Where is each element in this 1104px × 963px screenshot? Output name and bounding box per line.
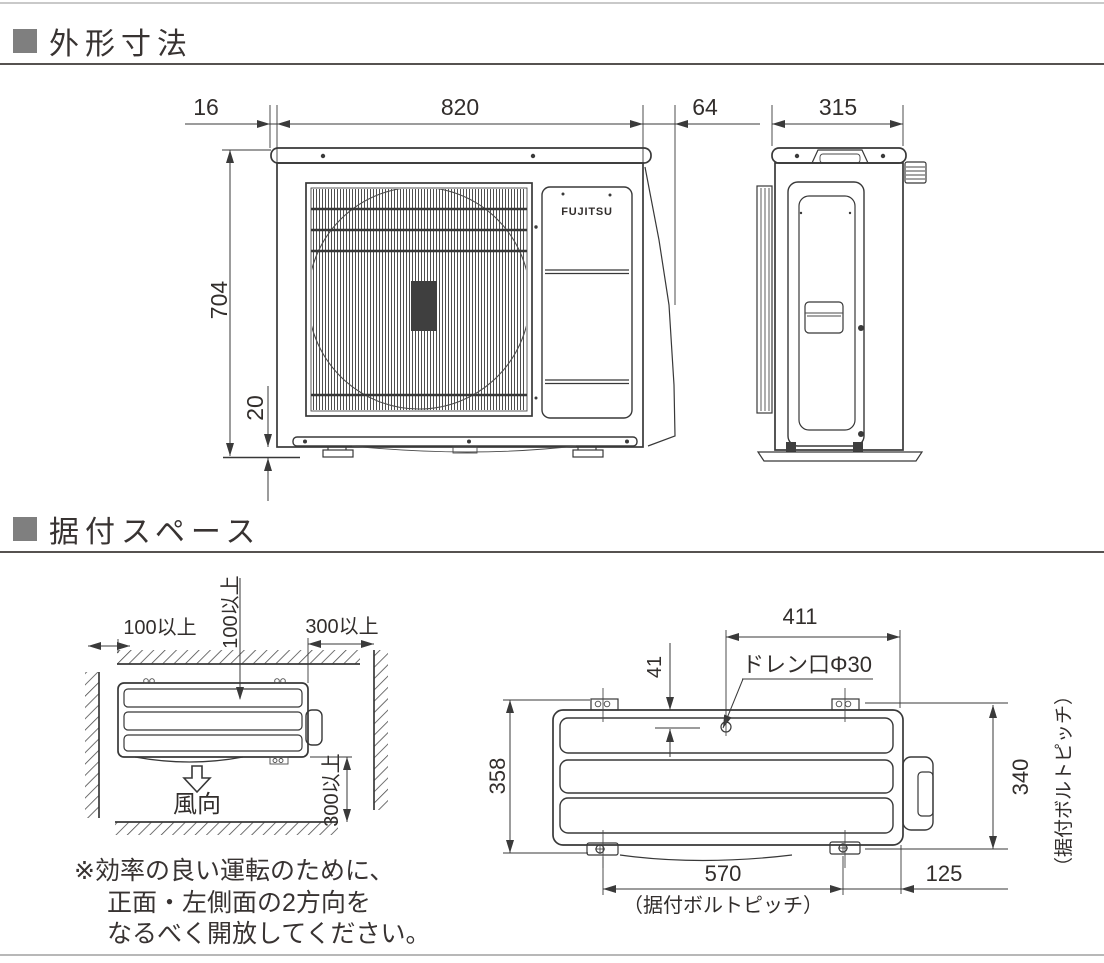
dim-front-height: 704: [206, 281, 232, 320]
fan-grille: [306, 183, 532, 416]
technical-drawing: 16 820 64 704 20: [0, 0, 1104, 963]
hinge-screw: [858, 431, 864, 437]
dim-bolt-pitch-v: 340: [1008, 759, 1033, 796]
bolt-pitch-h-label: （据付ボルトピッチ）: [623, 894, 823, 917]
drain-port-label: ドレン口Φ30: [742, 652, 872, 677]
dim-bolt-pitch-h: 570: [705, 861, 742, 886]
dim-bottom-depth: 358: [485, 758, 510, 795]
dim-right-clearance: 300以上: [305, 615, 378, 638]
dim-front-top-overhang: 16: [193, 94, 219, 120]
install-bottom-view: 411 41 ドレン口Φ30: [485, 604, 1075, 917]
dim-drain-y: 41: [644, 656, 666, 678]
panel-handle: [805, 302, 843, 333]
dim-left-clearance: 100以上: [123, 616, 196, 639]
base-arc: [620, 855, 792, 861]
dim-front-clearance: 300以上: [320, 753, 343, 826]
service-panel: FUJITSU: [542, 187, 632, 418]
unit-bottom-view: [553, 688, 933, 868]
dim-side-depth: 315: [819, 94, 857, 120]
dim-right-offset: 125: [926, 861, 963, 886]
front-view: 16 820 64 704 20: [185, 94, 760, 501]
foot: [573, 450, 603, 457]
side-foot: [853, 442, 863, 452]
cap-bolt: [531, 154, 535, 158]
dim-front-base-height: 20: [242, 395, 268, 421]
dim-back-clearance: 100以上: [219, 575, 242, 648]
unit-top-cap: [271, 148, 651, 163]
side-panel: [788, 182, 864, 446]
unit-top-view: [118, 679, 322, 764]
left-wall: [85, 672, 99, 818]
panel-screw: [534, 225, 537, 228]
side-base-plate: [758, 452, 922, 461]
spec-sheet-page: { "colors": { "header_square": "#7f7f7f"…: [0, 0, 1104, 963]
side-foot: [786, 442, 796, 452]
install-clearance-view: 100以上 100以上 300以上 風向 300以上: [85, 575, 388, 835]
airflow-down-arrow-icon: [184, 766, 210, 792]
side-view: 315: [757, 94, 926, 461]
cap-bolt: [321, 154, 325, 158]
foot: [323, 450, 353, 457]
airflow-label: 風向: [173, 791, 221, 818]
dim-front-width: 820: [441, 94, 479, 120]
right-wall: [374, 650, 388, 810]
hinge-screw: [858, 325, 864, 331]
coil-guard: [757, 186, 772, 413]
side-body: [775, 163, 903, 450]
side-edge: [645, 167, 675, 446]
brand-logo: FUJITSU: [561, 206, 612, 218]
bolt-pitch-v-label: （据付ボルトピッチ）: [1053, 686, 1075, 876]
fan-hub: [411, 281, 437, 331]
panel-screw: [535, 397, 538, 400]
valve-cover: [905, 162, 926, 183]
front-wall: [115, 822, 338, 835]
dim-drain-x: 411: [782, 604, 817, 629]
back-wall: [117, 650, 360, 664]
dim-front-side-protrusion: 64: [692, 94, 718, 120]
